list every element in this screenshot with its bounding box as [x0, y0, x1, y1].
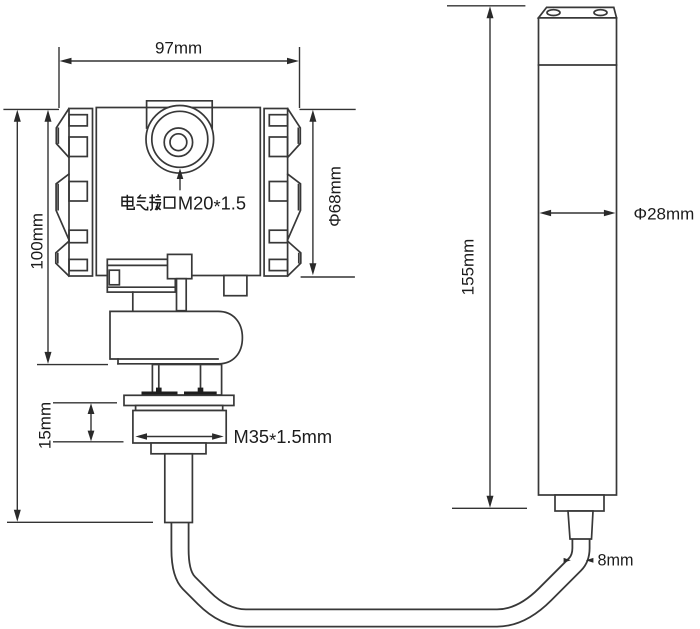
- svg-text:8mm: 8mm: [598, 552, 634, 570]
- svg-text:15mm: 15mm: [36, 402, 55, 449]
- svg-text:Φ68mm: Φ68mm: [326, 166, 345, 227]
- svg-text:M20*1.5: M20*1.5: [178, 193, 246, 217]
- svg-text:M35*1.5mm: M35*1.5mm: [234, 426, 333, 450]
- svg-text:155mm: 155mm: [459, 239, 478, 296]
- svg-text:97mm: 97mm: [155, 39, 202, 58]
- svg-text:100mm: 100mm: [28, 213, 47, 270]
- svg-text:Φ28mm: Φ28mm: [634, 205, 695, 224]
